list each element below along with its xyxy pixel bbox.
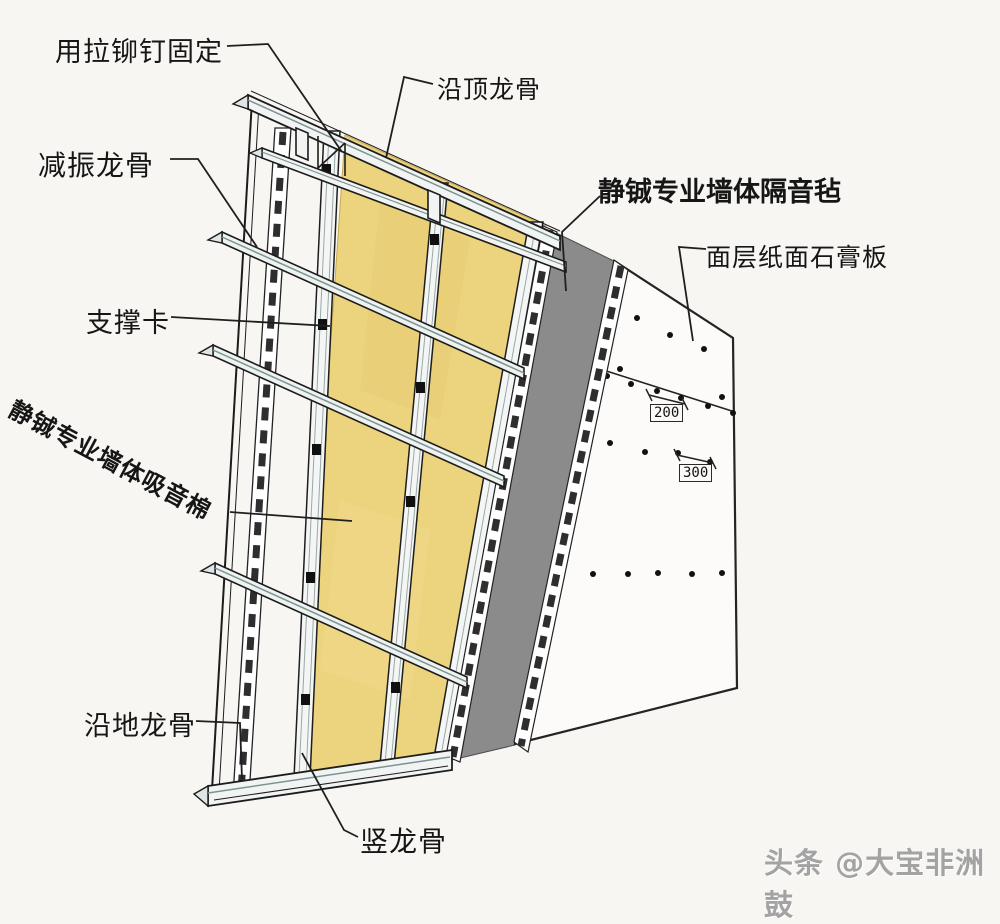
label-top-track: 沿顶龙骨	[437, 70, 541, 106]
dimension-200: 200	[650, 404, 683, 422]
label-damping-channel: 减振龙骨	[38, 144, 154, 184]
label-rivet-fix: 用拉铆钉固定	[55, 30, 223, 69]
back-stud-ladder	[233, 128, 291, 796]
label-isolation-felt: 静铖专业墙体隔音毡	[598, 170, 841, 209]
label-floor-track: 沿地龙骨	[84, 704, 196, 743]
label-vertical-stud: 竖龙骨	[360, 820, 447, 860]
watermark-text: 头条 @大宝非洲鼓	[764, 840, 1000, 924]
label-gypsum-board: 面层纸面石膏板	[706, 238, 888, 274]
label-support-clip: 支撑卡	[86, 301, 170, 340]
dimension-300: 300	[679, 464, 712, 482]
diagram-canvas	[0, 0, 1000, 894]
leader-support-clip	[171, 317, 330, 326]
soundproof-wall-diagram: 用拉铆钉固定 沿顶龙骨 减振龙骨 支撑卡 静铖专业墙体吸音棉 静铖专业墙体隔音毡…	[0, 0, 1000, 894]
leader-top-track	[386, 77, 433, 158]
